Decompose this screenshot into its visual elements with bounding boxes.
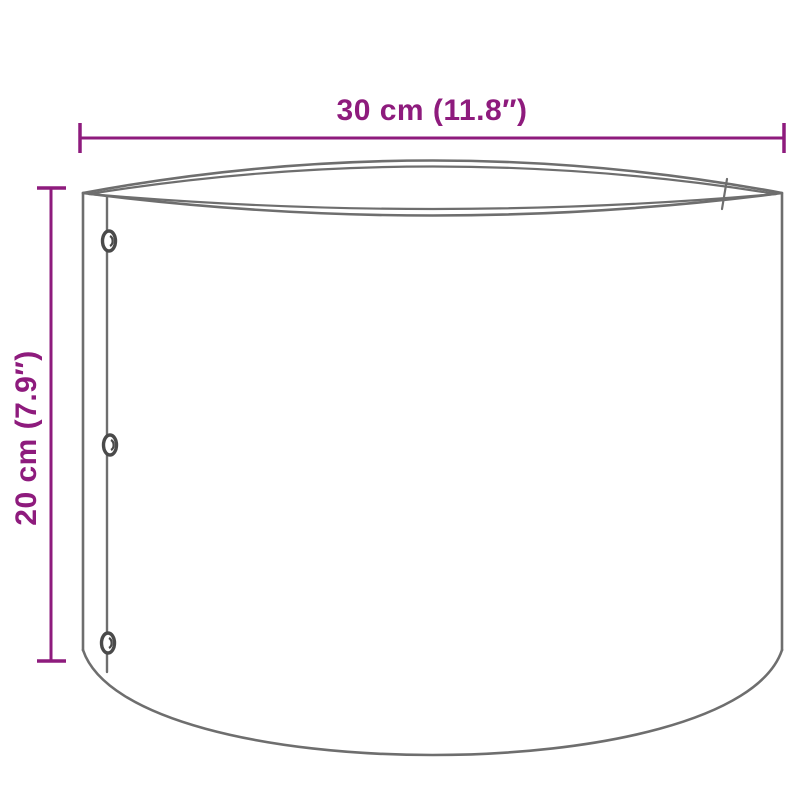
rim-outer-back xyxy=(83,161,782,194)
rim-inner-front xyxy=(89,194,776,209)
rivet-top xyxy=(103,231,116,251)
cylinder-body xyxy=(83,161,782,756)
rim-outer-front xyxy=(83,193,782,216)
rim-inner-back xyxy=(89,167,776,195)
diagram-canvas: 30 cm (11.8″) 20 cm (7.9″) xyxy=(0,0,800,800)
rivet-middle xyxy=(104,435,117,455)
width-dimension-label: 30 cm (11.8″) xyxy=(337,94,528,128)
rivet-bottom xyxy=(102,633,115,653)
height-dimension-label: 20 cm (7.9″) xyxy=(10,350,44,525)
rivets xyxy=(102,231,117,653)
bottom-edge xyxy=(83,650,782,755)
